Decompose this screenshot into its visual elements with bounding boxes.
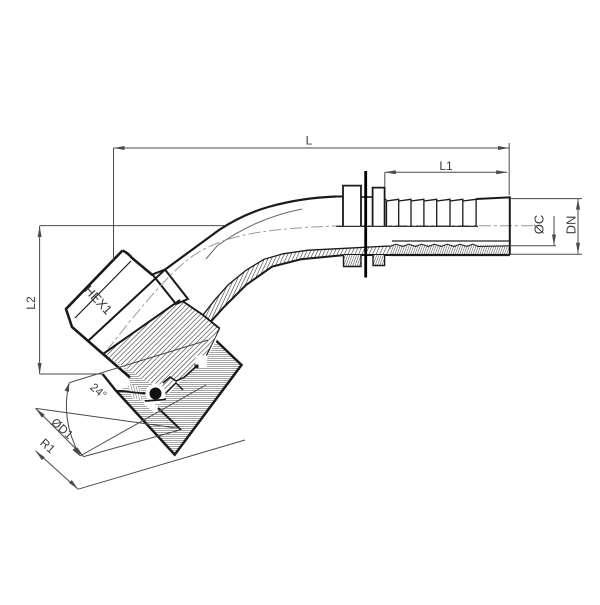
svg-text:L2: L2	[24, 296, 38, 310]
svg-text:L1: L1	[439, 159, 453, 173]
svg-text:L: L	[306, 134, 313, 148]
svg-text:ØC: ØC	[532, 215, 547, 235]
svg-text:DN: DN	[563, 216, 578, 235]
